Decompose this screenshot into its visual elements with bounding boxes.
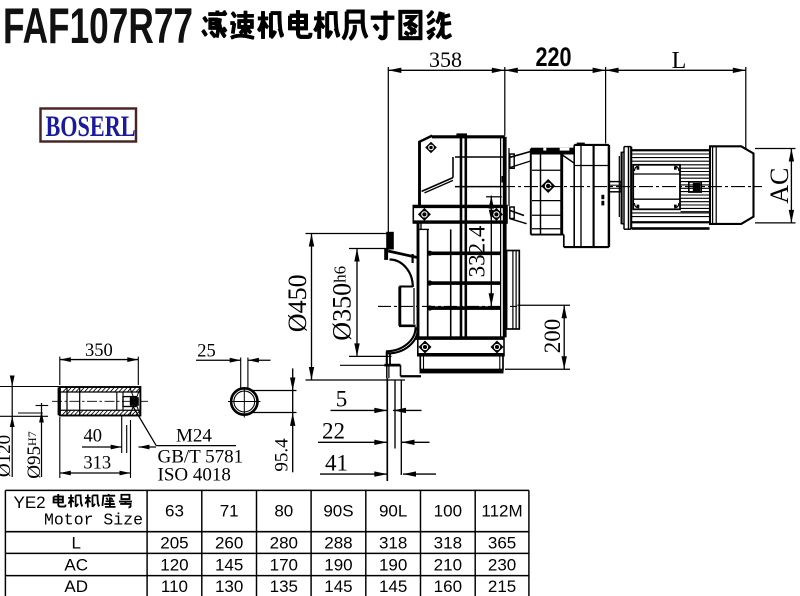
svg-text:Ø450: Ø450 <box>283 274 312 332</box>
svg-text:130: 130 <box>215 577 243 596</box>
svg-text:190: 190 <box>324 556 352 575</box>
svg-text:332.4: 332.4 <box>465 225 490 277</box>
svg-text:358: 358 <box>429 47 462 72</box>
svg-text:110: 110 <box>161 577 188 596</box>
svg-text:Ø120: Ø120 <box>0 435 15 477</box>
svg-text:M24: M24 <box>176 426 212 447</box>
svg-text:ISO 4018: ISO 4018 <box>158 465 231 486</box>
svg-text:5: 5 <box>336 387 348 412</box>
svg-text:95.4: 95.4 <box>272 438 293 472</box>
svg-text:200: 200 <box>540 319 565 354</box>
svg-text:YE2: YE2 <box>14 493 46 512</box>
svg-text:215: 215 <box>488 577 516 596</box>
svg-text:FAF107R77: FAF107R77 <box>3 0 193 55</box>
svg-text:135: 135 <box>270 577 298 596</box>
svg-text:205: 205 <box>160 534 188 553</box>
svg-text:313: 313 <box>83 454 111 474</box>
svg-text:170: 170 <box>270 556 298 575</box>
svg-text:145: 145 <box>215 556 243 575</box>
svg-text:71: 71 <box>220 502 239 521</box>
svg-text:BOSERL: BOSERL <box>46 109 136 143</box>
svg-text:318: 318 <box>379 534 407 553</box>
svg-text:L: L <box>672 48 687 74</box>
svg-text:22: 22 <box>322 419 345 444</box>
svg-text:Motor Size: Motor Size <box>44 511 143 530</box>
svg-text:AC: AC <box>64 556 88 575</box>
svg-text:AD: AD <box>64 577 88 596</box>
svg-text:L: L <box>71 534 80 553</box>
svg-text:260: 260 <box>215 534 243 553</box>
svg-text:230: 230 <box>488 556 516 575</box>
svg-text:318: 318 <box>434 534 462 553</box>
svg-text:112M: 112M <box>481 502 522 521</box>
svg-text:25: 25 <box>197 342 216 362</box>
svg-text:160: 160 <box>434 577 462 596</box>
svg-text:145: 145 <box>379 577 407 596</box>
svg-text:40: 40 <box>83 427 102 447</box>
svg-text:350: 350 <box>85 341 113 361</box>
svg-text:AC: AC <box>765 168 794 204</box>
svg-text:220: 220 <box>535 43 571 73</box>
svg-text:365: 365 <box>488 534 516 553</box>
svg-text:190: 190 <box>379 556 407 575</box>
svg-text:210: 210 <box>434 556 462 575</box>
svg-text:90S: 90S <box>323 502 353 521</box>
svg-text:41: 41 <box>325 451 348 476</box>
svg-text:280: 280 <box>270 534 298 553</box>
svg-text:90L: 90L <box>379 502 407 521</box>
svg-text:145: 145 <box>324 577 352 596</box>
svg-text:80: 80 <box>274 502 293 521</box>
svg-text:288: 288 <box>324 534 352 553</box>
svg-text:100: 100 <box>434 502 462 521</box>
svg-text:120: 120 <box>160 556 188 575</box>
svg-text:63: 63 <box>165 502 184 521</box>
